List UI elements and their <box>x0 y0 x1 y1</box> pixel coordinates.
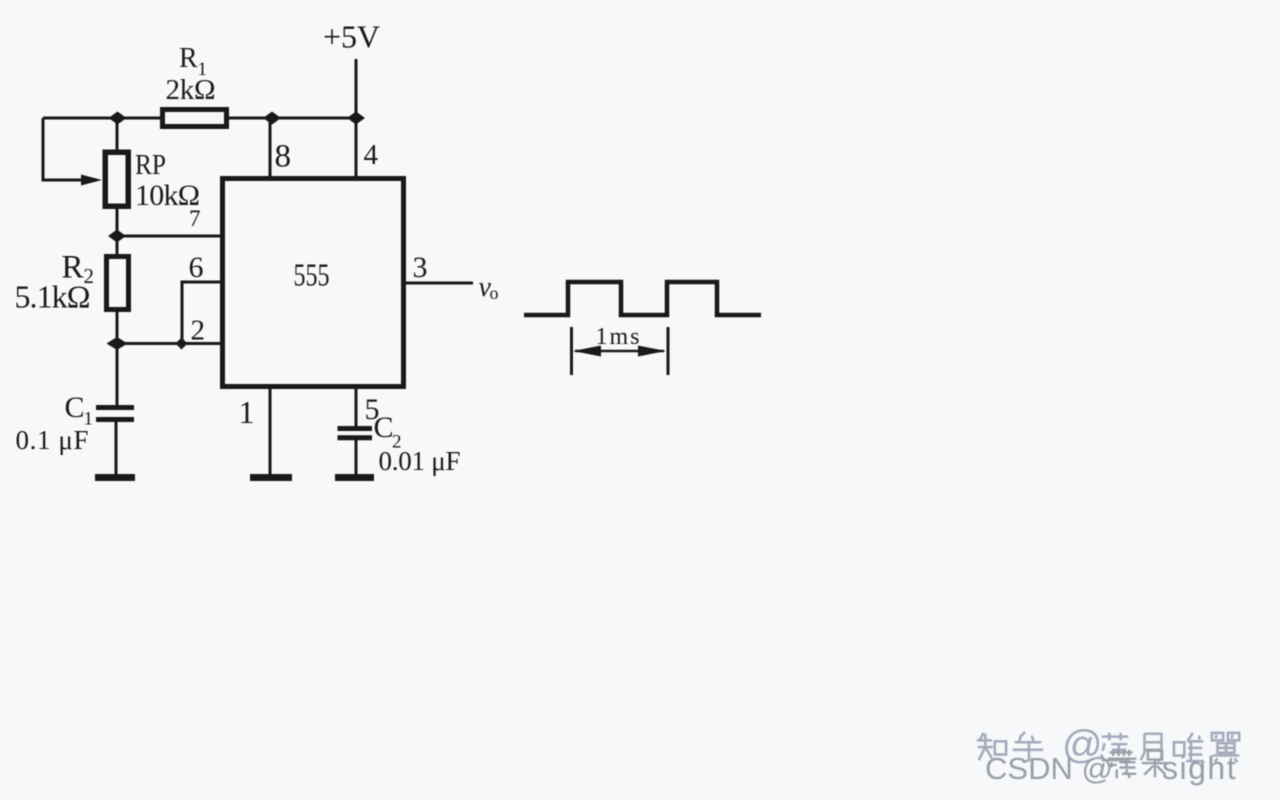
svg-text:7: 7 <box>189 206 201 231</box>
svg-text:1ms: 1ms <box>596 324 640 350</box>
svg-text:555: 555 <box>294 257 330 293</box>
svg-text:6: 6 <box>189 251 204 284</box>
svg-text:sight: sight <box>1162 750 1237 786</box>
svg-text:+5V: +5V <box>323 19 380 55</box>
svg-text:C: C <box>65 391 85 424</box>
svg-text:RP: RP <box>135 149 166 181</box>
svg-text:2kΩ: 2kΩ <box>166 74 216 106</box>
svg-text:C: C <box>374 411 394 444</box>
svg-text:8: 8 <box>275 139 292 175</box>
svg-text:4: 4 <box>364 139 379 171</box>
svg-text:5.1kΩ: 5.1kΩ <box>15 279 91 315</box>
svg-text:1: 1 <box>239 394 255 430</box>
svg-text:R: R <box>179 43 198 74</box>
svg-text:3: 3 <box>413 251 428 284</box>
svg-text:0.1 μF: 0.1 μF <box>16 425 89 455</box>
svg-text:2: 2 <box>191 315 206 347</box>
svg-text:CSDN @: CSDN @ <box>985 751 1113 786</box>
svg-text:0.01 μF: 0.01 μF <box>379 446 461 476</box>
svg-text:o: o <box>490 283 499 303</box>
